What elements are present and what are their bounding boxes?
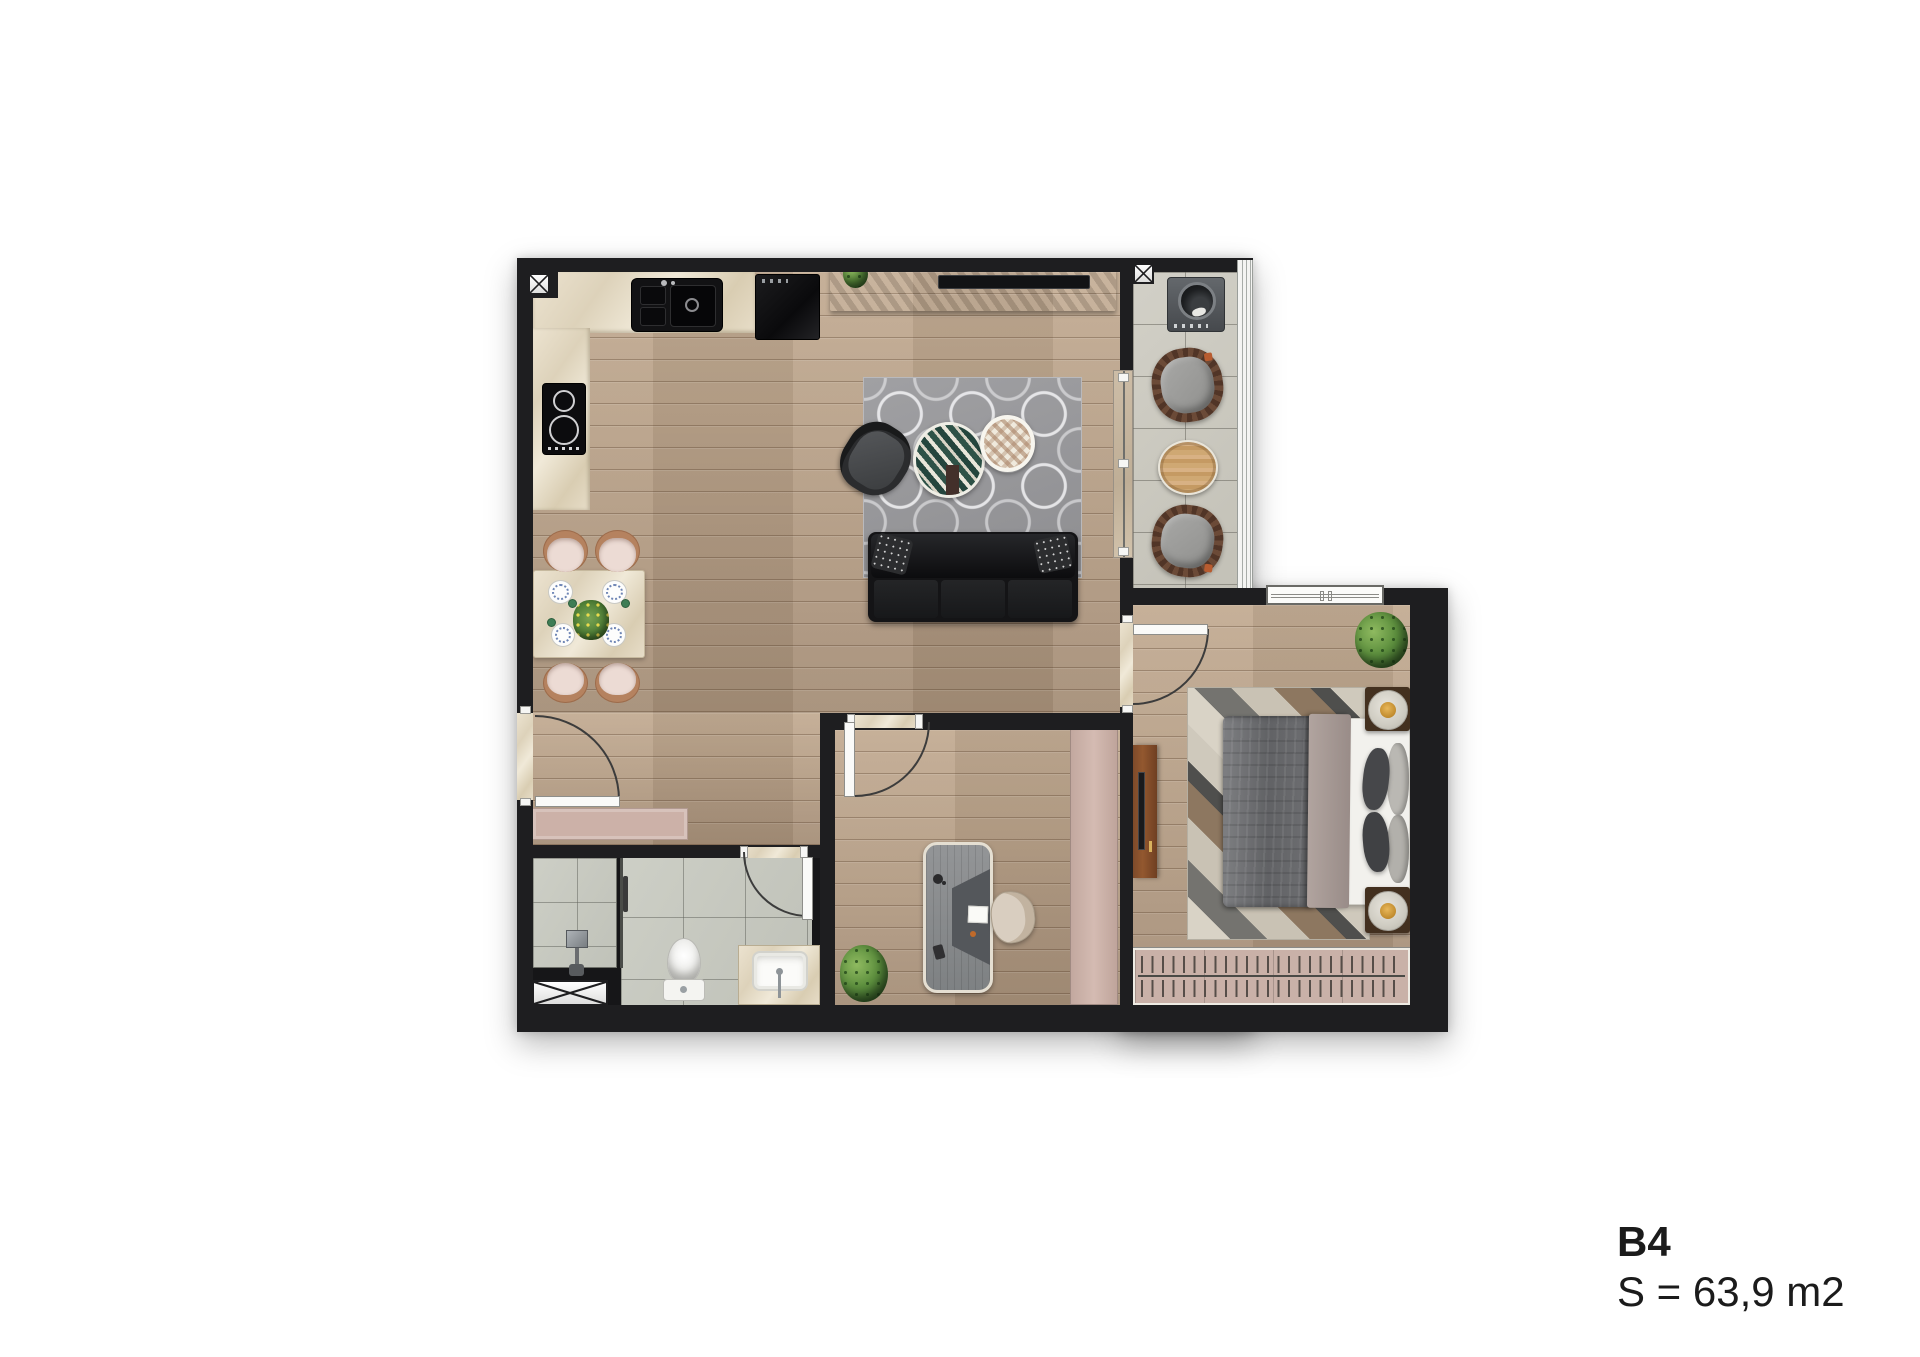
- glass-line: [1250, 260, 1251, 588]
- chair-accent: [1204, 564, 1213, 573]
- entry-door-leaf: [535, 796, 620, 807]
- shaft-x-kitchen-icon: [528, 273, 550, 295]
- wall-office-top-right: [915, 713, 1120, 730]
- wall-bedroom-left-lower: [1120, 707, 1133, 1005]
- kitchen-oven: [755, 274, 820, 340]
- bedroom-door-jamb-bottom: [1122, 705, 1133, 713]
- desk-dot-orange: [970, 931, 976, 937]
- entry-door-jamb-top: [520, 706, 531, 714]
- dining-chair-1: [543, 530, 588, 572]
- chair-cushion: [547, 663, 584, 695]
- wardrobe: [1133, 948, 1410, 1005]
- window-mullion: [1328, 591, 1332, 601]
- balcony-table: [1158, 440, 1218, 495]
- plate-pattern: [606, 627, 622, 643]
- balcony-glass-wall: [1237, 260, 1253, 588]
- shaft-x-bathroom-icon: [532, 980, 608, 1006]
- wall-right: [1410, 588, 1448, 1032]
- office-desk: [923, 842, 993, 993]
- coffee-table-teal: [913, 422, 985, 498]
- sofa-seat-2: [941, 580, 1005, 618]
- lamp-top: [1368, 690, 1408, 730]
- bed-pillow-light-2: [1387, 815, 1409, 883]
- dining-chair-4: [595, 663, 640, 703]
- toilet: [663, 938, 705, 1002]
- coffee-table-cream: [980, 415, 1035, 472]
- dining-chair-3: [543, 663, 588, 703]
- chair-cushion: [599, 538, 636, 572]
- wardrobe-rail: [1138, 975, 1405, 977]
- cup-3: [547, 618, 556, 627]
- bed-pillow-dark-2: [1360, 811, 1391, 873]
- wardrobe-hangers-top: [1141, 956, 1402, 973]
- glass-line: [1246, 260, 1247, 588]
- cooktop-burner-large: [549, 415, 579, 445]
- balcony-chair-cushion: [1158, 511, 1218, 572]
- threshold-bedroom: [1120, 623, 1133, 707]
- tv-console: [830, 267, 1116, 311]
- entry-mat: [532, 808, 688, 840]
- vanity-faucet-stem: [778, 974, 781, 998]
- sink-basin-left-bottom: [640, 307, 666, 326]
- slider-handle-top: [1118, 373, 1129, 382]
- tv-board-handle: [1149, 841, 1152, 852]
- office-closet-band: [1070, 727, 1118, 1005]
- dining-chair-2: [595, 530, 640, 572]
- wall-bedroom-top-left: [1120, 588, 1268, 605]
- wall-balcony-lower: [1120, 558, 1133, 605]
- toilet-bowl: [667, 938, 701, 984]
- plate-pattern: [555, 627, 571, 643]
- chair-cushion: [599, 663, 636, 695]
- wardrobe-hangers-bottom: [1141, 980, 1402, 997]
- glass-line: [1242, 260, 1243, 588]
- window-inner-line: [1271, 594, 1379, 595]
- sofa-seat-1: [874, 580, 938, 618]
- slider-handle-mid: [1118, 459, 1129, 468]
- bed-throw: [1307, 714, 1351, 908]
- tv-screen: [938, 275, 1090, 289]
- sink-strainer: [685, 298, 699, 312]
- sink-basin-left-top: [640, 286, 666, 305]
- window-inner-line: [1271, 597, 1379, 598]
- chair-cushion: [547, 538, 584, 572]
- shower-glass: [620, 857, 623, 968]
- toilet-button: [680, 986, 687, 993]
- chair-accent: [1204, 352, 1213, 361]
- cup-2: [621, 599, 630, 608]
- entry-door-jamb-bottom: [520, 798, 531, 806]
- desk-object: [932, 944, 945, 960]
- teal-table-stripe: [946, 465, 959, 498]
- sofa-seat-3: [1008, 580, 1072, 618]
- oven-knobs: [762, 279, 788, 283]
- shower-glass-handle: [623, 876, 628, 912]
- shaft-x-balcony-icon: [1133, 263, 1154, 284]
- shower-mixer: [566, 930, 588, 948]
- wall-left-upper: [517, 258, 533, 713]
- threshold-entry: [517, 713, 533, 800]
- bedroom-plant: [1355, 612, 1408, 668]
- wall-balcony-upper: [1120, 258, 1133, 370]
- lamp-bottom: [1368, 891, 1408, 931]
- bed-pillow-dark-1: [1360, 747, 1392, 811]
- cooktop-controls: [548, 447, 580, 450]
- washing-machine: [1167, 277, 1225, 332]
- lamp-glow: [1380, 903, 1396, 919]
- bedroom-tv: [1138, 772, 1145, 850]
- slider-handle-bottom: [1118, 547, 1129, 556]
- unit-label-block: B4 S = 63,9 m2: [1617, 1218, 1845, 1319]
- washer-controls: [1174, 324, 1208, 328]
- office-door-leaf: [844, 722, 855, 797]
- wall-office-vertical: [820, 713, 835, 1005]
- desk-paper: [968, 906, 989, 924]
- wall-bottom: [517, 1005, 1448, 1032]
- office-plant: [840, 945, 888, 1002]
- lamp-glow: [1380, 702, 1396, 718]
- sofa-pillow-right: [1033, 534, 1073, 574]
- kitchen-sink: [631, 278, 723, 332]
- desk-lamp: [933, 874, 943, 884]
- bedroom-door-leaf: [1133, 624, 1208, 635]
- bed-pillow-light-1: [1387, 743, 1409, 815]
- bedroom-tv-board: [1133, 745, 1157, 878]
- sofa: [868, 532, 1078, 622]
- bedroom-door-jamb-top: [1122, 615, 1133, 623]
- cooktop-burner-small: [553, 390, 575, 412]
- window-mullion: [1320, 591, 1324, 601]
- balcony-sliding-door: [1113, 370, 1133, 558]
- bed-blanket: [1223, 716, 1313, 907]
- plate-pattern: [606, 584, 623, 600]
- bedroom-window: [1266, 585, 1384, 605]
- kitchen-cooktop: [542, 383, 586, 455]
- balcony-chair-cushion: [1157, 354, 1217, 417]
- sink-faucet: [661, 280, 667, 286]
- dining-flowers: [573, 600, 609, 640]
- bath-door-leaf: [802, 857, 813, 920]
- wall-left-lower: [517, 800, 533, 1032]
- unit-name: B4: [1617, 1218, 1845, 1266]
- wall-bedroom-top-right: [1382, 588, 1448, 605]
- plate-pattern: [552, 584, 569, 600]
- plate-3: [551, 623, 575, 647]
- floor-plan: [517, 258, 1448, 1032]
- shower-head: [569, 964, 584, 976]
- wall-bathroom-top-left: [517, 845, 740, 858]
- unit-area: S = 63,9 m2: [1617, 1266, 1845, 1319]
